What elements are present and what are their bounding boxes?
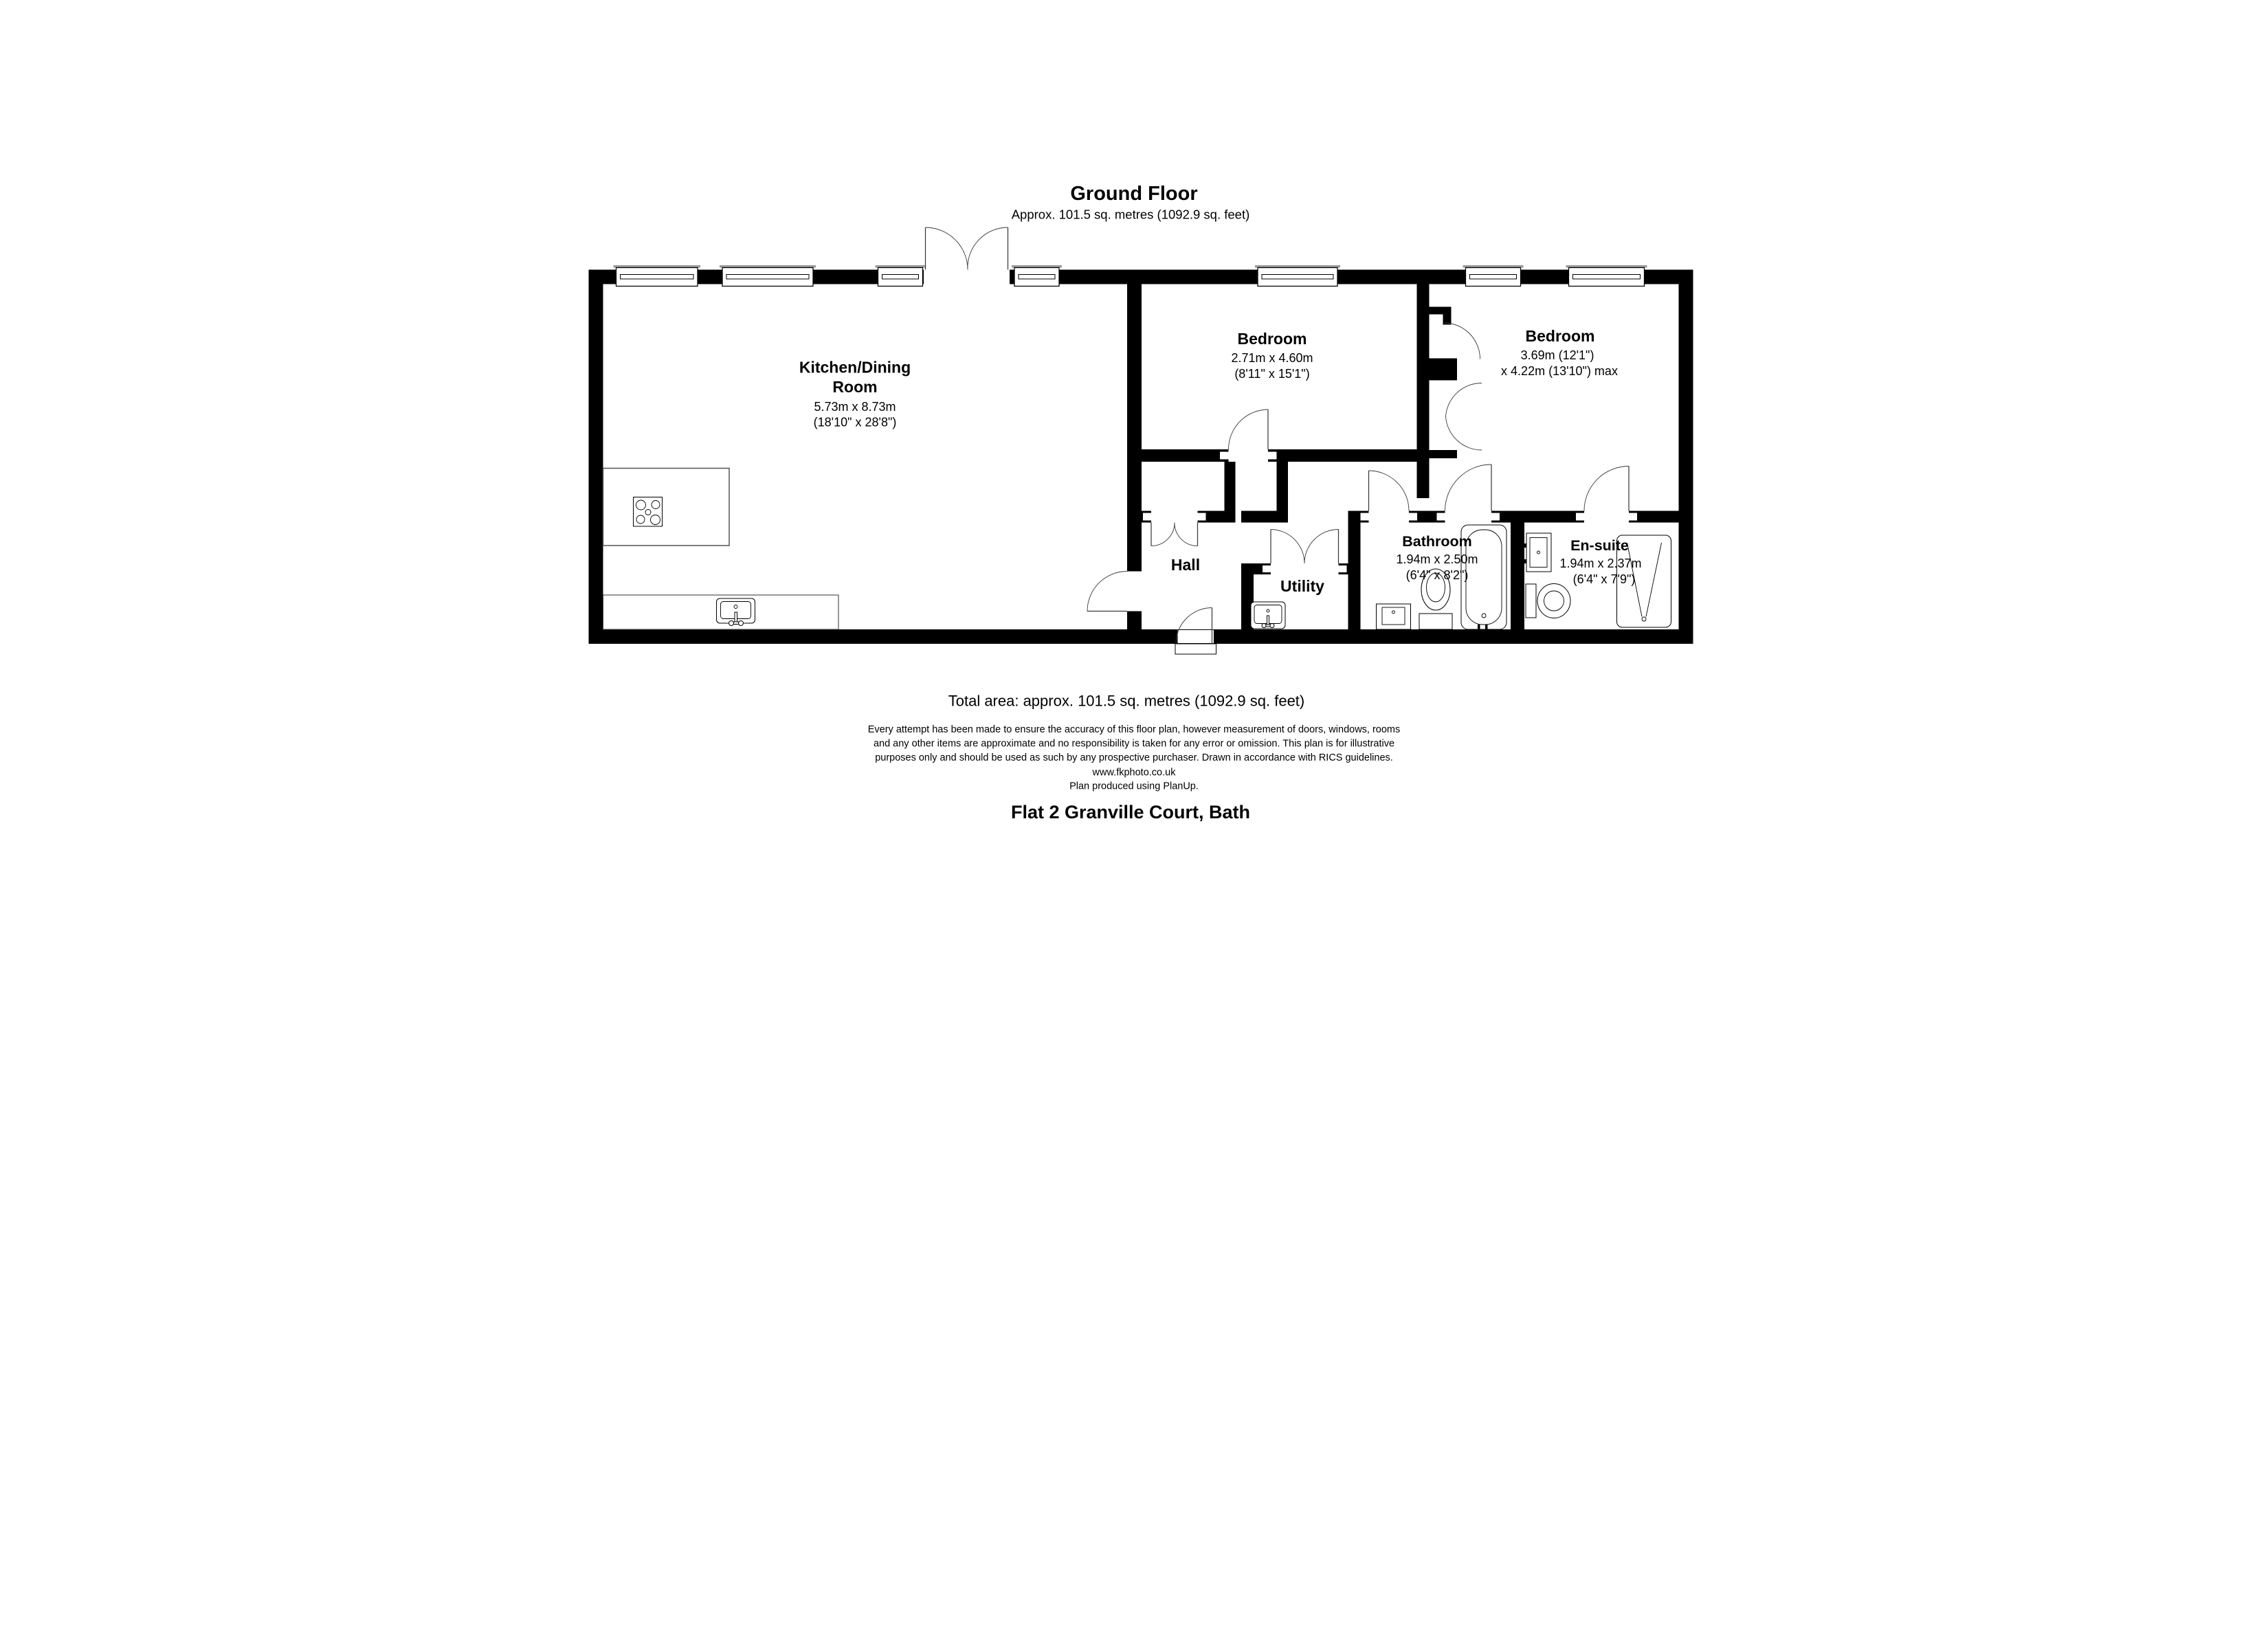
- room-dims: 3.69m (12'1"): [1521, 348, 1594, 362]
- room-dims: (18'10" x 28'8"): [814, 416, 897, 429]
- sink-icon: [717, 598, 755, 626]
- room-dims: 2.71m x 4.60m: [1231, 351, 1313, 365]
- room-dims: 1.94m x 2.37m: [1559, 557, 1641, 570]
- room-name: Bedroom: [1526, 327, 1595, 345]
- property-address: Flat 2 Granville Court, Bath: [1011, 802, 1250, 822]
- hob-icon: [634, 497, 663, 527]
- wall: [589, 629, 1693, 644]
- wall: [1430, 359, 1458, 381]
- disclaimer: and any other items are approximate and …: [874, 739, 1394, 750]
- room-label-bedroom1: Bedroom 2.71m x 4.60m (8'11" x 15'1"): [1231, 330, 1313, 381]
- room-name: Bathroom: [1402, 533, 1472, 550]
- room-dims: (6'4" x 8'2"): [1406, 568, 1469, 582]
- wall: [1348, 511, 1361, 630]
- wall: [1241, 511, 1288, 523]
- room-label-bathroom: Bathroom 1.94m x 2.50m (6'4" x 8'2"): [1396, 533, 1478, 582]
- wall: [589, 270, 603, 644]
- window-icon: [1255, 265, 1340, 287]
- room-dims: (6'4" x 7'9"): [1573, 572, 1636, 586]
- wall: [1127, 284, 1142, 572]
- wall: [1268, 449, 1417, 462]
- total-area: Total area: approx. 101.5 sq. metres (10…: [948, 693, 1305, 710]
- room-dims: 1.94m x 2.50m: [1396, 552, 1478, 566]
- wall: [1511, 511, 1524, 630]
- kitchen-counter: [603, 595, 839, 629]
- wall: [1225, 462, 1236, 511]
- floor-plan: Ground Floor Approx. 101.5 sq. metres (1…: [567, 0, 1701, 824]
- room-dims: (8'11" x 15'1"): [1234, 367, 1309, 381]
- window-icon: [1012, 265, 1062, 287]
- floor-plan-page: Ground Floor Approx. 101.5 sq. metres (1…: [567, 0, 1701, 824]
- disclaimer: purposes only and should be used as such…: [875, 752, 1393, 763]
- wall: [1127, 612, 1142, 630]
- wall: [1443, 307, 1452, 325]
- room-name: Hall: [1171, 556, 1200, 574]
- wall: [1491, 511, 1584, 523]
- room-name: Room: [832, 378, 877, 396]
- wall: [1142, 449, 1229, 462]
- room-name: Kitchen/Dining: [799, 359, 911, 377]
- room-name: En-suite: [1570, 537, 1629, 554]
- wall: [1417, 450, 1458, 458]
- room-dims: x 4.22m (13'10") max: [1501, 364, 1618, 378]
- room-name: Bedroom: [1238, 330, 1307, 348]
- disclaimer: Every attempt has been made to ensure th…: [868, 724, 1401, 735]
- page-subtitle: Approx. 101.5 sq. metres (1092.9 sq. fee…: [1012, 207, 1250, 222]
- wall: [1417, 284, 1430, 499]
- room-label-utility: Utility: [1280, 577, 1324, 595]
- window-icon: [1463, 265, 1524, 287]
- toilet-icon: [1526, 584, 1570, 618]
- website-link: www.fkphoto.co.uk: [1092, 767, 1177, 778]
- sink-icon: [1251, 602, 1285, 629]
- wall: [1277, 462, 1289, 511]
- window-icon: [876, 265, 926, 287]
- wall: [1679, 270, 1693, 644]
- window-icon: [720, 265, 816, 287]
- room-dims: 5.73m x 8.73m: [814, 400, 896, 414]
- page-title: Ground Floor: [1070, 183, 1197, 205]
- room-label-hall: Hall: [1171, 556, 1200, 574]
- produced-by: Plan produced using PlanUp.: [1069, 781, 1199, 792]
- kitchen-island: [603, 469, 730, 546]
- window-icon: [1566, 265, 1647, 287]
- room-name: Utility: [1280, 577, 1324, 595]
- window-icon: [614, 265, 701, 287]
